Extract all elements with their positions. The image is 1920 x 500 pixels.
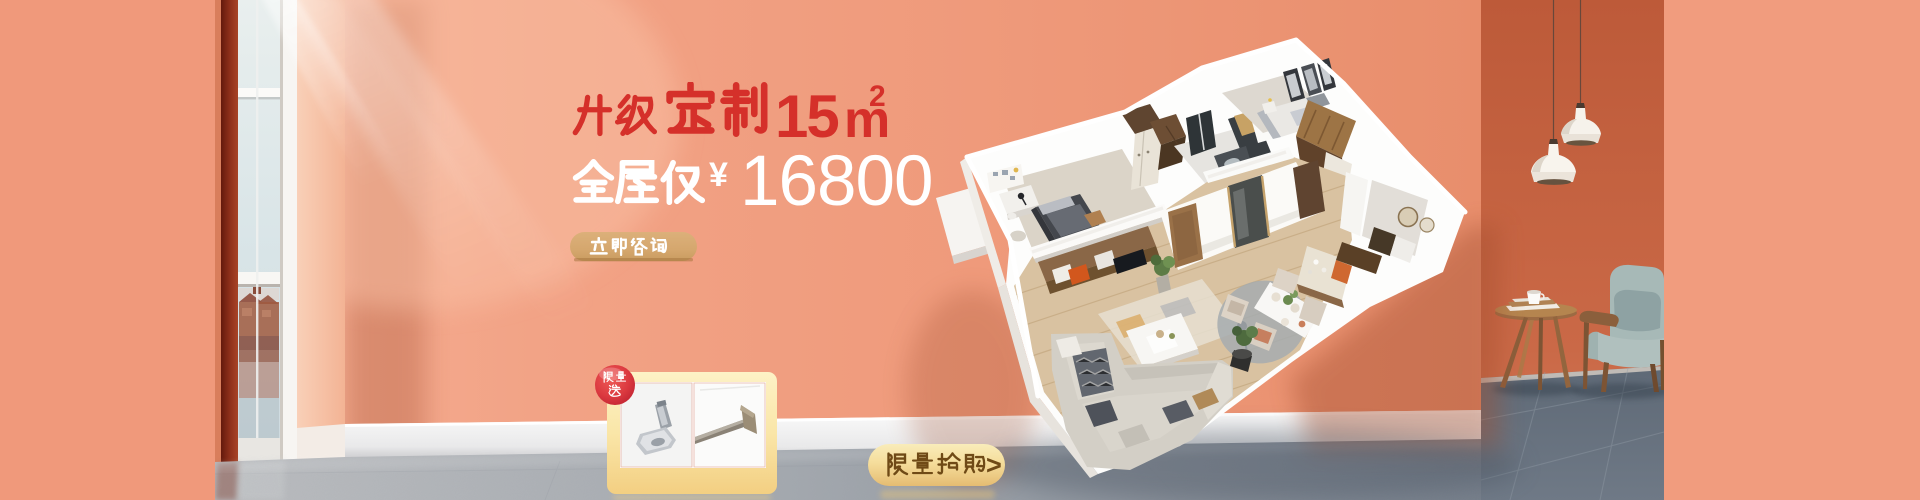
svg-text:16800: 16800 [740,142,932,221]
svg-text:15: 15 [775,83,838,150]
svg-text:¥: ¥ [709,156,728,194]
svg-text:2: 2 [869,80,886,113]
svg-text:>: > [986,450,1002,480]
